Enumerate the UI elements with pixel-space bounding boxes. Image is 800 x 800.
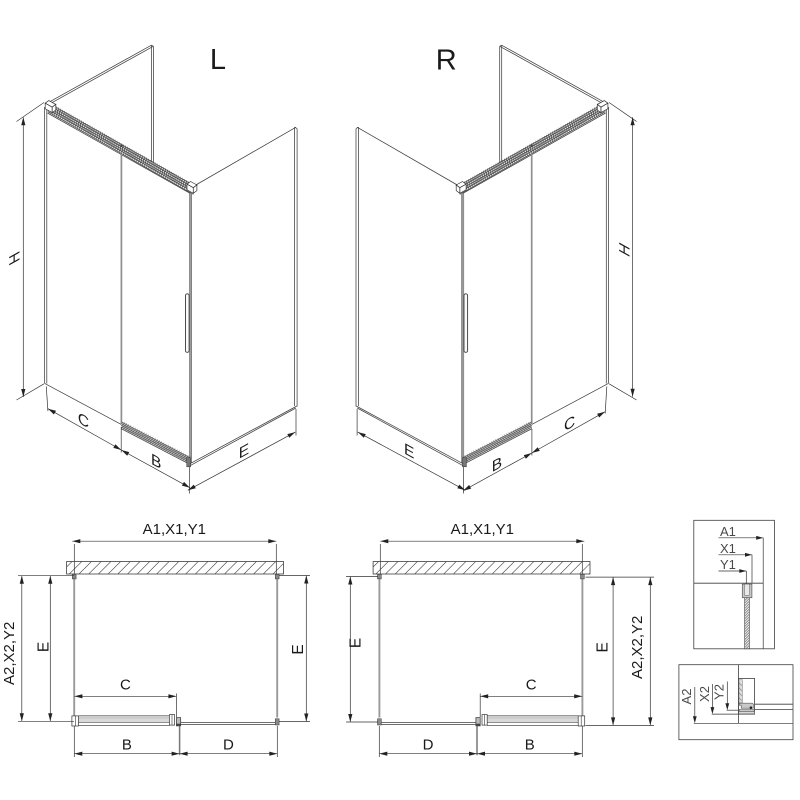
svg-text:Y2: Y2 (712, 684, 727, 700)
svg-text:C: C (526, 677, 537, 694)
svg-text:H: H (617, 240, 634, 260)
svg-text:X2: X2 (697, 686, 712, 702)
svg-text:D: D (223, 737, 234, 754)
svg-text:C: C (564, 411, 575, 435)
svg-text:B: B (122, 737, 132, 754)
svg-text:E: E (348, 638, 365, 648)
svg-text:B: B (151, 450, 161, 473)
svg-text:B: B (492, 453, 502, 476)
svg-text:E: E (595, 642, 612, 652)
svg-text:A2,X2,Y2: A2,X2,Y2 (1, 622, 18, 685)
svg-text:R: R (436, 45, 457, 77)
svg-text:A1: A1 (720, 524, 736, 539)
svg-text:C: C (78, 408, 89, 432)
svg-text:X1: X1 (720, 541, 736, 556)
svg-text:B: B (525, 737, 535, 754)
svg-text:A1,X1,Y1: A1,X1,Y1 (143, 521, 206, 538)
svg-text:C: C (120, 677, 131, 694)
svg-text:H: H (6, 248, 23, 268)
svg-text:E: E (290, 644, 307, 654)
svg-text:E: E (36, 642, 53, 652)
svg-text:D: D (423, 737, 434, 754)
svg-text:Y1: Y1 (720, 557, 736, 572)
svg-text:E: E (404, 439, 414, 462)
svg-text:A2: A2 (679, 689, 694, 705)
svg-text:A2,X2,Y2: A2,X2,Y2 (629, 616, 646, 679)
svg-text:E: E (239, 439, 249, 462)
svg-text:A1,X1,Y1: A1,X1,Y1 (451, 521, 514, 538)
svg-text:L: L (210, 44, 226, 76)
